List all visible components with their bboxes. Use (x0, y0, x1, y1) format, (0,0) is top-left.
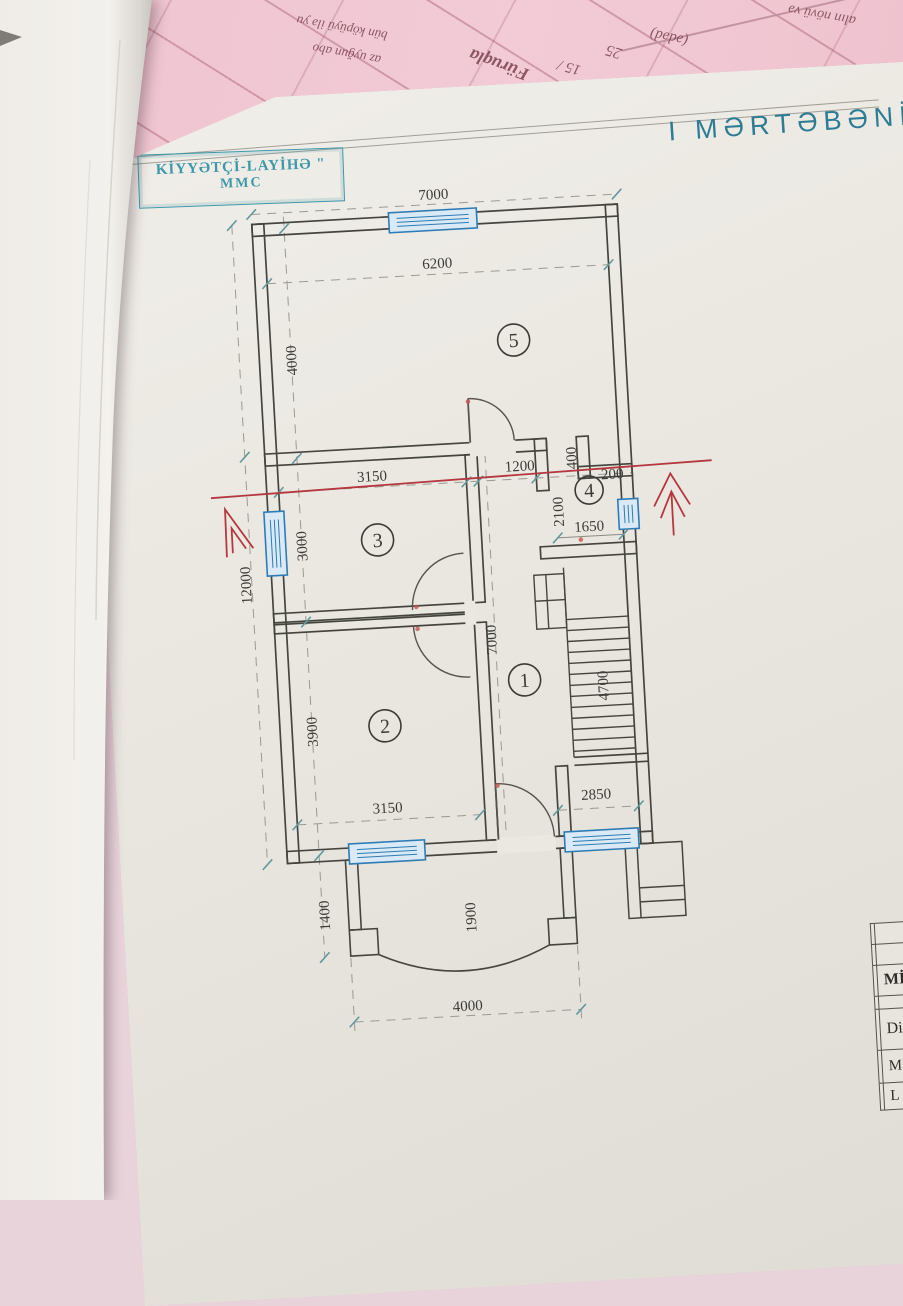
dimension-labels: 7000 6200 4000 12000 3150 1200 400 200 2… (217, 178, 653, 1026)
title-block: MİQ Di M L (870, 914, 903, 1111)
window-symbol (388, 208, 477, 233)
page-curl (0, 0, 220, 1200)
room-number-2: 2 (379, 716, 390, 739)
dim-label: 6200 (422, 255, 453, 273)
floor-plan: 5 3 4 2 1 7000 6200 4000 12000 3150 1200… (190, 169, 747, 1056)
pink-text-fragment: 15 / (556, 55, 583, 78)
dim-label: 3000 (294, 531, 312, 562)
pink-text-fragment: 25 (604, 40, 624, 62)
dim-label: 7000 (418, 186, 449, 204)
dim-label: 2850 (581, 786, 612, 804)
window-symbol (618, 498, 640, 529)
dimension-ticks (226, 189, 667, 1032)
dim-label: 1900 (463, 902, 481, 933)
pink-text-fragment: bün köpüyü ilə yu (295, 12, 388, 44)
entrance-porch (345, 848, 578, 977)
room-number-5: 5 (508, 330, 519, 353)
dim-label: 1650 (574, 518, 605, 536)
page-curl-shape (0, 0, 152, 1200)
pink-text-fragment: (ədəd) (649, 24, 690, 49)
dim-label: 3150 (357, 468, 388, 486)
dim-label: 4000 (284, 345, 302, 376)
dim-label: 4700 (595, 670, 613, 701)
dim-label: 12000 (238, 566, 256, 604)
window-symbol (349, 840, 426, 864)
door-openings (455, 437, 556, 855)
window-symbol (564, 828, 639, 852)
door-arc (495, 781, 554, 840)
dim-label: 400 (564, 446, 581, 469)
dim-label: 3150 (372, 800, 403, 818)
door-arc (413, 623, 470, 680)
window-symbol (264, 511, 288, 576)
room-number-3: 3 (372, 530, 383, 553)
room-number-4: 4 (584, 480, 595, 503)
dim-label: 1200 (504, 458, 535, 476)
dim-label: 4000 (452, 998, 483, 1016)
section-arrow-icon (652, 473, 691, 537)
staircase (533, 564, 635, 759)
pink-text-fragment: Füruqla (466, 44, 531, 85)
dim-label: 1400 (317, 900, 335, 931)
dim-label: 7000 (484, 624, 502, 655)
door-arc (410, 553, 467, 610)
dim-label: 3900 (304, 716, 322, 747)
dim-label: 2100 (550, 496, 568, 527)
room-number-1: 1 (519, 670, 530, 693)
exterior-stair (625, 841, 686, 918)
door-arc (468, 396, 514, 442)
pink-text-fragment: az uyğun abo (311, 40, 382, 68)
floor-plan-svg: 5 3 4 2 1 7000 6200 4000 12000 3150 1200… (190, 169, 747, 1056)
photo-of-floor-plan-document: { "background": { "pink_fragments": { "f… (0, 0, 903, 1200)
dim-label: 200 (601, 466, 624, 483)
